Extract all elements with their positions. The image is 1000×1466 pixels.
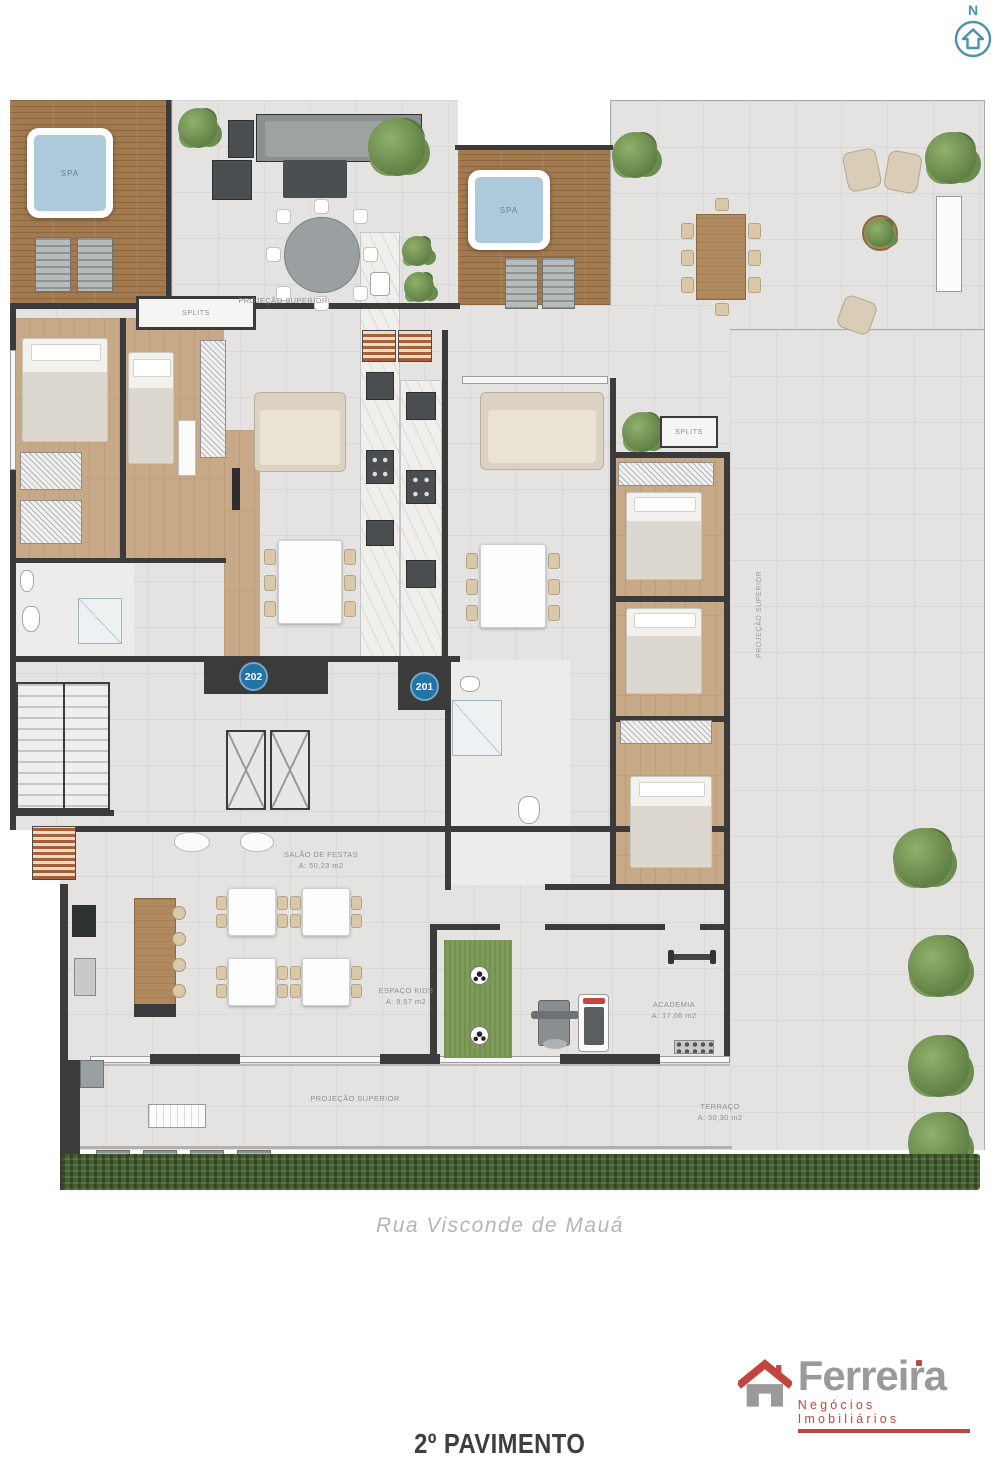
grill-unit <box>228 120 254 158</box>
chair <box>548 579 560 595</box>
chair <box>344 549 356 565</box>
splits-left-label: SPLITS <box>182 310 210 317</box>
bench-table <box>148 1104 206 1128</box>
kitchen-appliance <box>366 372 394 400</box>
wall <box>545 924 665 930</box>
tree <box>908 935 970 997</box>
terrace-dining-table <box>696 214 746 300</box>
chair <box>290 966 301 980</box>
bed-202-room2 <box>128 352 174 464</box>
wall <box>120 318 126 563</box>
tree <box>893 828 953 888</box>
wall <box>60 884 68 1060</box>
sofa-202 <box>254 392 346 472</box>
chair <box>681 250 694 266</box>
splits-box-right: SPLITS <box>660 416 718 448</box>
wall-light <box>80 1146 732 1149</box>
gym-machine <box>538 1000 570 1046</box>
wall-light <box>80 1064 730 1066</box>
academia-label: ACADEMIA A: 17,06 m2 <box>630 1000 718 1021</box>
kitchen-appliance <box>366 520 394 546</box>
sun-lounger <box>505 257 538 309</box>
wardrobe <box>20 452 82 490</box>
chair <box>748 223 761 239</box>
salao-label: SALÃO DE FESTAS A: 50,23 m2 <box>266 850 376 871</box>
grill-cart <box>212 160 252 200</box>
bar-counter-base <box>134 1004 176 1017</box>
soccer-ball <box>470 966 489 985</box>
chair <box>351 914 362 928</box>
kitchen-appliance <box>406 560 436 588</box>
wall <box>724 455 730 885</box>
salao-area: A: 50,23 m2 <box>266 861 376 872</box>
spa-pool-right-label: SPA <box>500 206 518 215</box>
wall <box>700 924 730 930</box>
chair <box>264 575 276 591</box>
bar-stool <box>172 958 186 972</box>
window-strip <box>10 350 16 470</box>
bar-stool <box>172 932 186 946</box>
bed-master-201 <box>630 776 712 868</box>
wall <box>10 810 114 816</box>
sofa-201 <box>480 392 604 470</box>
compass: N <box>952 2 994 59</box>
terraco-name: TERRAÇO <box>676 1102 764 1113</box>
chair <box>351 896 362 910</box>
shower-stall <box>78 598 122 644</box>
bar-stool <box>172 906 186 920</box>
chair <box>290 984 301 998</box>
shelf-unit <box>936 196 962 292</box>
tree <box>612 132 658 178</box>
chair <box>314 199 329 214</box>
chair <box>466 605 478 621</box>
barbell-icon <box>670 954 714 960</box>
wall <box>455 145 613 150</box>
kids-name: ESPAÇO KIDS <box>372 986 440 997</box>
wall <box>150 1054 240 1064</box>
tree <box>866 219 894 247</box>
planter-table <box>240 832 274 852</box>
tree <box>925 132 977 184</box>
chair <box>363 247 378 262</box>
floor-title-wrap: 2º PAVIMENTO <box>0 1428 1000 1460</box>
splits-right-label: SPLITS <box>675 429 703 436</box>
wall <box>724 884 730 1060</box>
bar-counter <box>134 898 176 1006</box>
chair <box>216 914 227 928</box>
chair <box>715 198 729 211</box>
bed-201-room2 <box>626 608 702 694</box>
wardrobe <box>618 462 714 486</box>
ac-split-unit <box>362 330 396 362</box>
apt201-bath-floor <box>445 660 570 885</box>
chair <box>344 575 356 591</box>
chair <box>748 250 761 266</box>
chair <box>681 277 694 293</box>
shower-stall <box>452 700 502 756</box>
party-table <box>228 888 276 936</box>
toilet <box>22 606 40 632</box>
wall <box>610 596 730 602</box>
kitchen-sink-unit <box>74 958 96 996</box>
unit-badge-202-label: 202 <box>245 671 263 683</box>
bed-master-202 <box>22 338 108 442</box>
kitchen-appliance <box>406 392 436 420</box>
ac-split-unit <box>32 826 76 880</box>
elevator-shaft <box>226 730 266 810</box>
spa-pool-right: SPA <box>468 170 550 250</box>
elevator-shaft <box>270 730 310 810</box>
planter-table <box>174 832 210 852</box>
wall <box>166 100 171 310</box>
compass-icon <box>953 19 993 59</box>
terraco-area: A: 50,30 m2 <box>676 1113 764 1124</box>
spa-pool-left-label: SPA <box>61 169 79 178</box>
coffee-table <box>283 160 347 198</box>
unit-badge-202: 202 <box>239 662 268 691</box>
logo-company-name: Ferreira <box>798 1356 970 1396</box>
toilet <box>518 796 540 824</box>
cooktop <box>366 450 394 484</box>
soccer-ball <box>470 1026 489 1045</box>
sink <box>460 676 480 692</box>
tree <box>178 108 218 148</box>
academia-area: A: 17,06 m2 <box>630 1011 718 1022</box>
tree <box>908 1035 970 1097</box>
wall <box>380 1054 440 1064</box>
desk <box>178 420 196 476</box>
tv-panel <box>232 468 240 510</box>
chair <box>290 914 301 928</box>
wall <box>430 924 500 930</box>
chair <box>353 286 368 301</box>
house-logo-icon <box>738 1356 792 1414</box>
wardrobe <box>620 720 712 744</box>
projection-label-bottom: PROJEÇÃO SUPERIOR <box>300 1094 410 1105</box>
logo-tagline: Negócios Imobiliários <box>798 1398 970 1426</box>
projection-label-top: PROJEÇÃO SUPERIOR <box>228 296 338 307</box>
bar-stool <box>172 984 186 998</box>
chair <box>681 223 694 239</box>
kids-label: ESPAÇO KIDS A: 9,57 m2 <box>372 986 440 1007</box>
palm-plant <box>404 272 434 302</box>
dining-table-201 <box>480 544 546 628</box>
chair <box>548 553 560 569</box>
wall <box>14 558 226 563</box>
counter-sink <box>370 272 390 296</box>
roof-terrace-right <box>610 100 985 330</box>
chair <box>277 984 288 998</box>
chair <box>277 914 288 928</box>
spa-pool-left: SPA <box>27 128 113 218</box>
logo-text-block: Ferreira Negócios Imobiliários <box>798 1356 970 1433</box>
chair <box>264 549 276 565</box>
tree <box>368 118 426 176</box>
tree <box>622 412 662 452</box>
wall <box>442 330 448 660</box>
terraco-label: TERRAÇO A: 50,30 m2 <box>676 1102 764 1123</box>
street-name: Rua Visconde de Mauá <box>0 1214 1000 1238</box>
sun-lounger <box>35 237 71 292</box>
staircase <box>16 682 110 810</box>
sink <box>20 570 34 592</box>
chair <box>266 247 281 262</box>
chair <box>351 984 362 998</box>
closet <box>200 340 226 458</box>
academia-name: ACADEMIA <box>630 1000 718 1011</box>
kitchen-appliance <box>72 905 96 937</box>
chair <box>353 209 368 224</box>
bed-201-room1 <box>626 492 702 580</box>
apt201-kitchen-counter <box>400 380 442 660</box>
party-table <box>302 888 350 936</box>
chair <box>466 579 478 595</box>
wardrobe <box>20 500 82 544</box>
party-table <box>302 958 350 1006</box>
chair <box>277 896 288 910</box>
chair <box>216 984 227 998</box>
palm-plant <box>402 236 432 266</box>
window-strip <box>462 376 608 384</box>
chair <box>216 966 227 980</box>
round-dining-table <box>284 217 360 293</box>
company-logo: Ferreira Negócios Imobiliários <box>738 1356 970 1433</box>
storage-box <box>80 1060 104 1088</box>
salao-name: SALÃO DE FESTAS <box>266 850 376 861</box>
chair <box>264 601 276 617</box>
chair <box>216 896 227 910</box>
chair <box>276 209 291 224</box>
chair <box>290 896 301 910</box>
party-table <box>228 958 276 1006</box>
wall <box>560 1054 660 1064</box>
terrace-right-column <box>730 330 985 1150</box>
chair <box>748 277 761 293</box>
chair <box>344 601 356 617</box>
projection-label-right: PROJEÇÃO SUPERIOR <box>756 528 763 658</box>
wall <box>545 884 730 890</box>
ac-split-unit <box>398 330 432 362</box>
chair <box>277 966 288 980</box>
chair <box>466 553 478 569</box>
dining-table-202 <box>278 540 342 624</box>
compass-north-label: N <box>968 2 978 18</box>
chair <box>715 303 729 316</box>
logo-red-dot <box>916 1360 922 1366</box>
floor-title: 2º PAVIMENTO <box>414 1428 585 1460</box>
unit-badge-201: 201 <box>410 672 439 701</box>
sun-lounger <box>542 257 575 309</box>
wicker-chair <box>883 149 923 194</box>
hedge-row <box>62 1154 980 1190</box>
treadmill <box>578 994 609 1052</box>
cooktop <box>406 470 436 504</box>
unit-badge-201-label: 201 <box>416 681 434 693</box>
kids-area: A: 9,57 m2 <box>372 997 440 1008</box>
dumbbell-rack <box>674 1040 714 1054</box>
sun-lounger <box>77 237 113 292</box>
chair <box>351 966 362 980</box>
wall <box>610 452 730 458</box>
chair <box>548 605 560 621</box>
